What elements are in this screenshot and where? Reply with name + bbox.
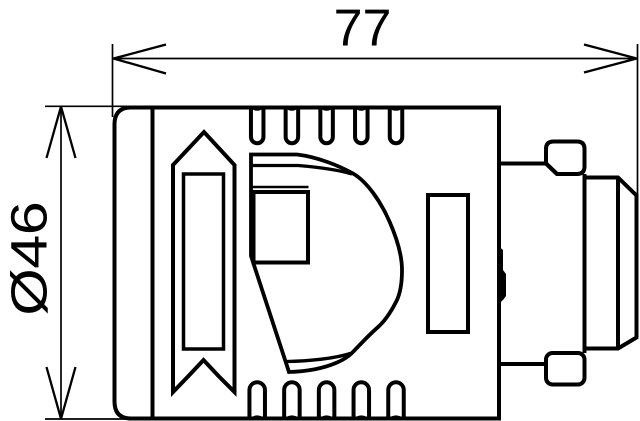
svg-text:Ø46: Ø46 bbox=[0, 202, 57, 316]
svg-text:77: 77 bbox=[334, 0, 392, 58]
